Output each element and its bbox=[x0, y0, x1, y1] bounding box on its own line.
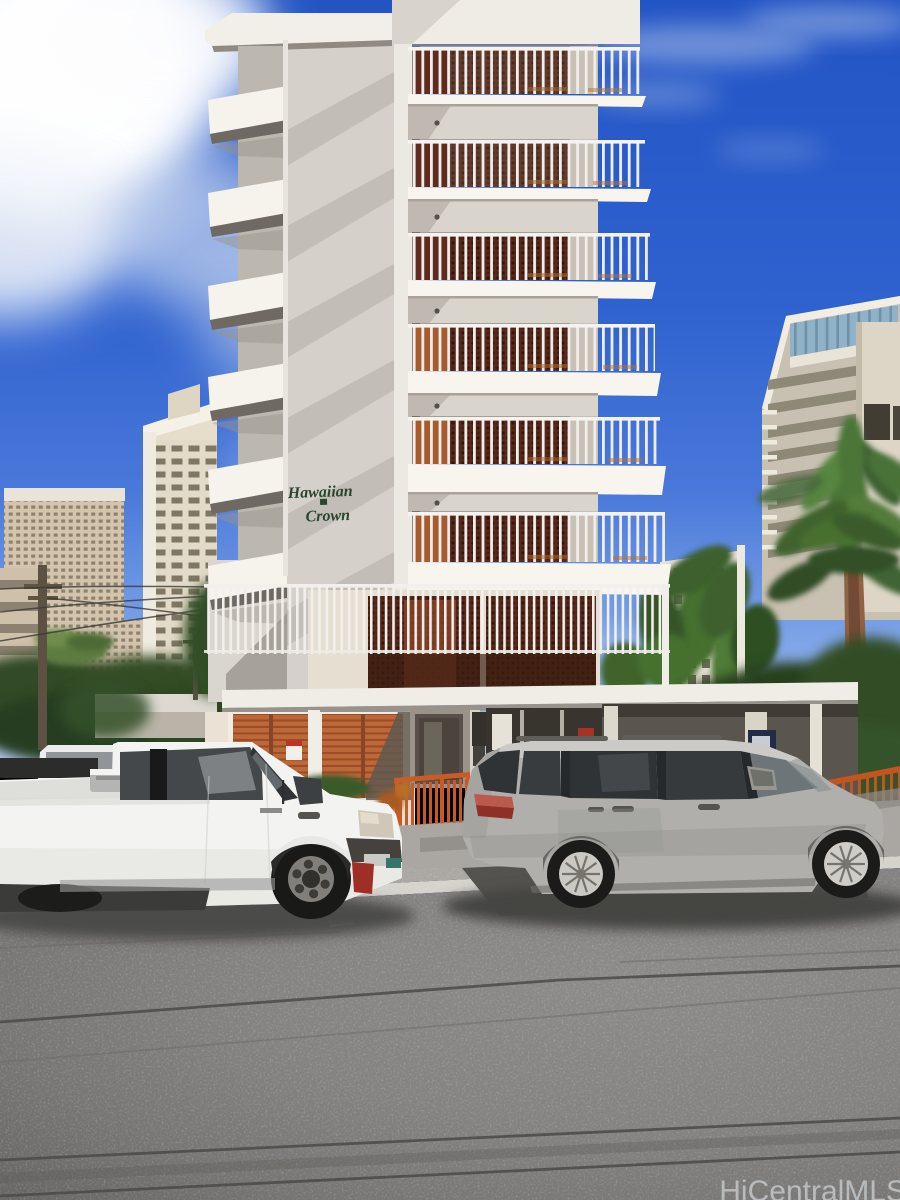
svg-text:Crοwn: Crοwn bbox=[305, 507, 350, 526]
svg-text:Hawaiian: Hawaiian bbox=[286, 483, 353, 502]
svg-text:HiCentralMLS: HiCentralMLS bbox=[719, 1175, 900, 1200]
